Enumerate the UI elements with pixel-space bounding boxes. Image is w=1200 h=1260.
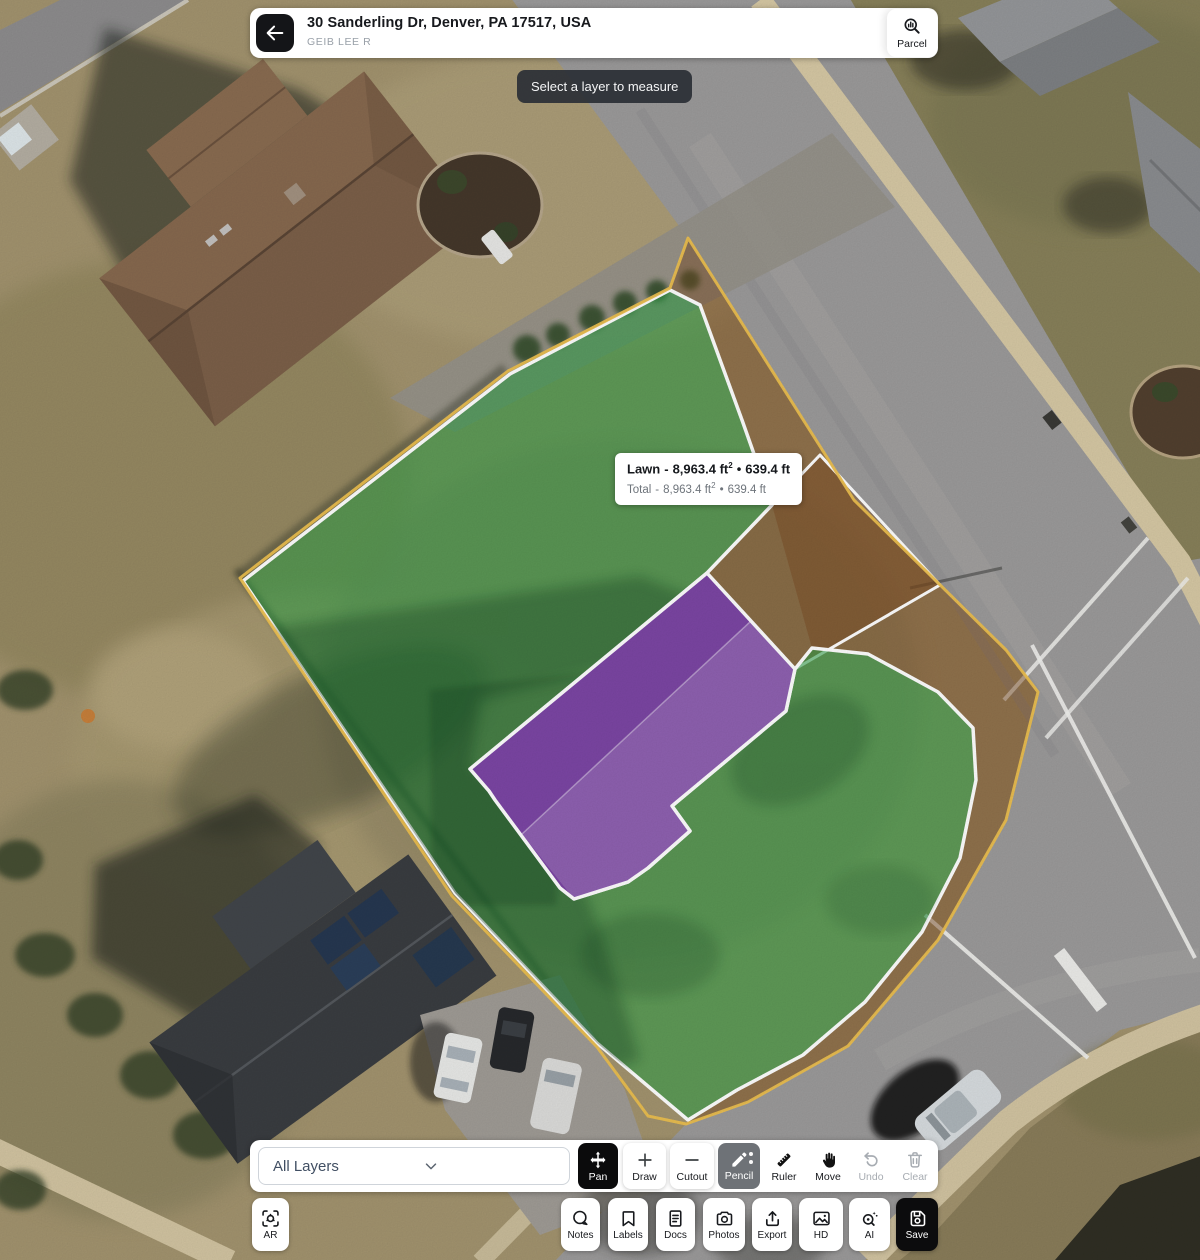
undo-button[interactable]: Undo — [851, 1143, 891, 1189]
ruler-tool-button[interactable]: Ruler — [763, 1143, 805, 1189]
camera-icon — [714, 1208, 735, 1229]
pencil-icon — [730, 1150, 749, 1169]
ai-button[interactable]: AI — [849, 1198, 890, 1251]
back-button[interactable] — [256, 14, 294, 52]
export-button[interactable]: Export — [752, 1198, 792, 1251]
hd-button[interactable]: HD — [799, 1198, 843, 1251]
layers-select-value: All Layers — [273, 1158, 408, 1175]
aerial-map[interactable] — [0, 0, 1200, 1260]
address-bar: 30 Sanderling Dr, Denver, PA 17517, USA … — [250, 8, 938, 58]
back-arrow-icon — [264, 22, 286, 44]
photos-button[interactable]: Photos — [703, 1198, 745, 1251]
parcel-search-icon — [902, 16, 922, 36]
draw-tool-button[interactable]: Draw — [623, 1143, 666, 1189]
hand-icon — [818, 1150, 838, 1170]
pan-icon — [588, 1150, 608, 1170]
ai-measure-icon — [859, 1208, 880, 1229]
bookmark-icon — [618, 1208, 639, 1229]
floppy-disk-icon — [907, 1208, 928, 1229]
total-measurement-line: Total-8,963.4 ft2•639.4 ft — [627, 481, 790, 496]
labels-button[interactable]: Labels — [608, 1198, 648, 1251]
measurement-card: Lawn-8,963.4 ft2•639.4 ft Total-8,963.4 … — [615, 453, 802, 505]
image-icon — [811, 1208, 832, 1229]
undo-icon — [861, 1150, 881, 1170]
chat-bubble-icon — [570, 1208, 591, 1229]
tools-panel: All Layers Pan Draw Cutout Pencil Ruler … — [250, 1140, 938, 1192]
save-button[interactable]: Save — [896, 1198, 938, 1251]
parcel-button-label: Parcel — [897, 38, 927, 50]
chevron-down-icon — [422, 1157, 557, 1175]
pencil-options-dots — [749, 1152, 753, 1164]
app-window: 30 Sanderling Dr, Denver, PA 17517, USA … — [0, 0, 1200, 1260]
address-title: 30 Sanderling Dr, Denver, PA 17517, USA — [307, 16, 591, 31]
upload-icon — [762, 1208, 783, 1229]
measure-tooltip: Select a layer to measure — [517, 70, 692, 103]
clear-button[interactable]: Clear — [895, 1143, 935, 1189]
parcel-button[interactable]: Parcel — [887, 9, 937, 57]
lawn-measurement-line: Lawn-8,963.4 ft2•639.4 ft — [627, 461, 790, 476]
photo-grain — [0, 0, 1200, 1260]
ar-scan-icon — [260, 1208, 281, 1229]
move-tool-button[interactable]: Move — [807, 1143, 849, 1189]
pan-tool-button[interactable]: Pan — [578, 1143, 618, 1189]
ar-button[interactable]: AR — [252, 1198, 289, 1251]
trash-icon — [905, 1150, 925, 1170]
notes-button[interactable]: Notes — [561, 1198, 600, 1251]
pencil-tool-button[interactable]: Pencil — [718, 1143, 760, 1189]
ruler-icon — [774, 1150, 794, 1170]
owner-subtitle: GEIB LEE R — [307, 37, 591, 48]
document-icon — [665, 1208, 686, 1229]
minus-icon — [682, 1150, 702, 1170]
layers-select[interactable]: All Layers — [258, 1147, 570, 1185]
docs-button[interactable]: Docs — [656, 1198, 695, 1251]
cutout-tool-button[interactable]: Cutout — [670, 1143, 714, 1189]
plus-icon — [635, 1150, 655, 1170]
